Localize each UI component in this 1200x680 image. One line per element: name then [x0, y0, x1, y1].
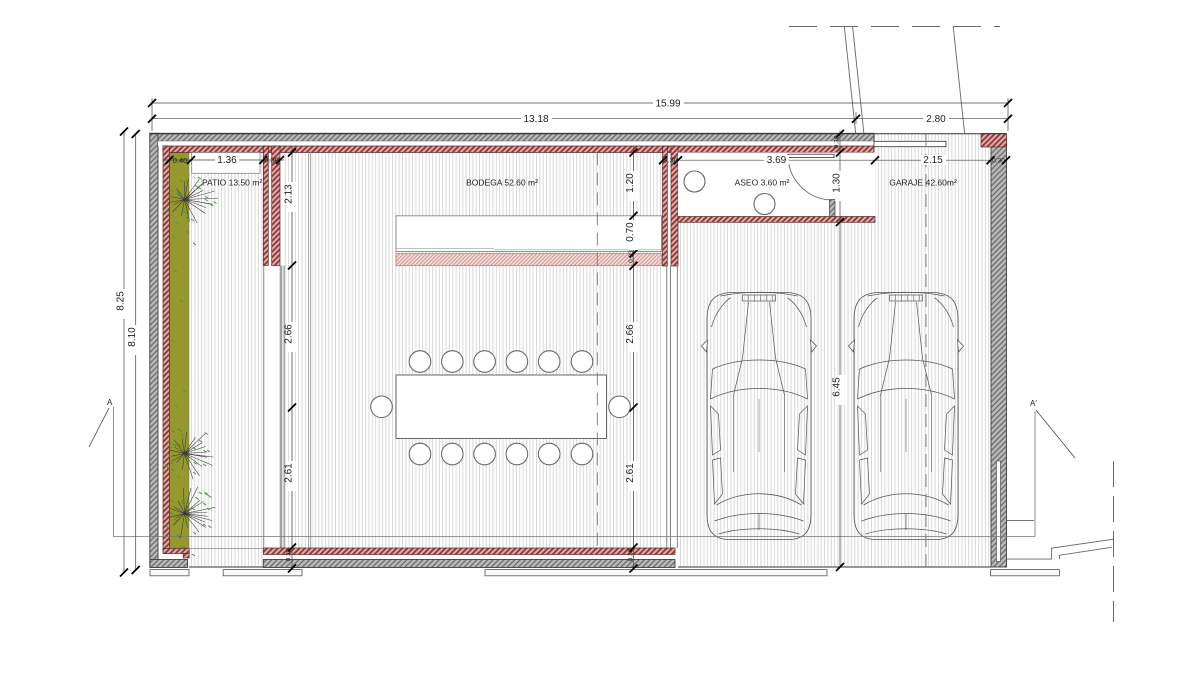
svg-text:15.99: 15.99 [655, 99, 680, 110]
svg-text:2.80: 2.80 [926, 114, 946, 125]
svg-text:6.45: 6.45 [832, 377, 843, 397]
svg-text:0.38: 0.38 [286, 548, 293, 561]
svg-text:8.25: 8.25 [116, 291, 127, 311]
svg-text:1.20: 1.20 [625, 173, 636, 193]
svg-text:0.70: 0.70 [625, 222, 636, 242]
svg-text:0.40: 0.40 [173, 156, 188, 165]
svg-text:PATIO 13.50 m²: PATIO 13.50 m² [202, 177, 262, 187]
svg-text:0.23: 0.23 [628, 250, 635, 263]
svg-text:2.15: 2.15 [923, 155, 943, 166]
svg-text:2.66: 2.66 [284, 324, 295, 344]
svg-text:0.30: 0.30 [264, 156, 279, 165]
svg-text:3.69: 3.69 [767, 155, 787, 166]
svg-text:8.10: 8.10 [127, 327, 138, 347]
svg-text:2.61: 2.61 [625, 463, 636, 483]
svg-text:1.30: 1.30 [832, 173, 843, 193]
svg-text:2.66: 2.66 [625, 324, 636, 344]
svg-text:0.38: 0.38 [834, 135, 841, 148]
svg-text:GARAJE 42.60m²: GARAJE 42.60m² [889, 177, 957, 187]
svg-text:2.13: 2.13 [284, 184, 295, 204]
svg-text:0.30: 0.30 [992, 158, 1005, 165]
svg-text:ASEO 3.60 m²: ASEO 3.60 m² [735, 177, 790, 187]
svg-text:BODEGA 52.60 m²: BODEGA 52.60 m² [466, 177, 538, 187]
svg-text:13.18: 13.18 [523, 114, 548, 125]
svg-text:1.36: 1.36 [217, 155, 237, 166]
svg-text:0.30: 0.30 [663, 155, 678, 164]
svg-text:A: A [107, 398, 113, 407]
svg-text:0.38: 0.38 [628, 548, 635, 561]
svg-text:2.61: 2.61 [284, 463, 295, 483]
svg-text:A': A' [1030, 399, 1037, 408]
